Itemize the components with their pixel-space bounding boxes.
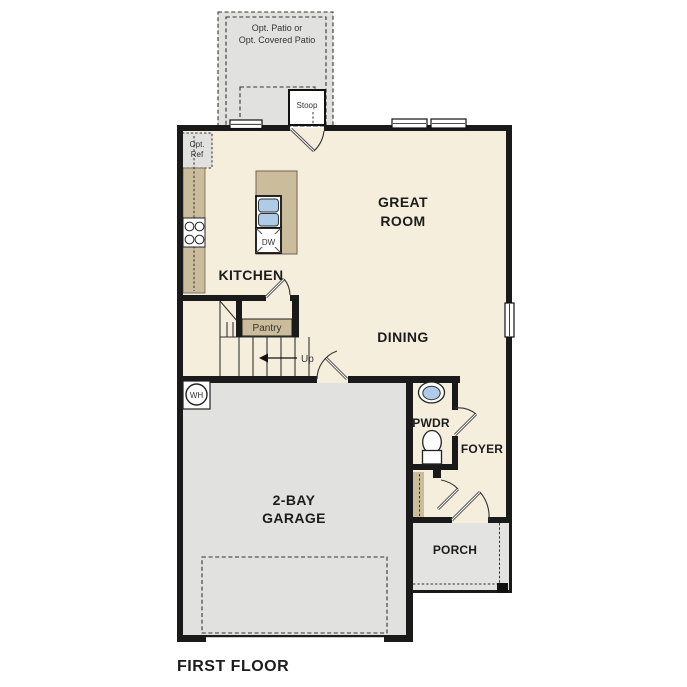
dishwasher-label: DW — [262, 238, 276, 247]
dining-label: DINING — [377, 329, 428, 345]
stoop-label: Stoop — [297, 101, 318, 110]
cooktop — [183, 218, 205, 247]
sink-bowl — [259, 214, 279, 227]
foyer-label: FOYER — [461, 442, 503, 456]
porch-label: PORCH — [433, 543, 477, 557]
burner-icon — [195, 235, 204, 244]
dishwasher: DW — [256, 228, 281, 253]
powder-room-label: PWDR — [412, 416, 450, 430]
opt-ref-label-line2: Ref — [191, 150, 204, 159]
island-sink — [256, 196, 281, 228]
water-heater: WH — [183, 381, 210, 409]
water-heater-label: WH — [190, 391, 204, 400]
pantry-label: Pantry — [253, 323, 282, 334]
sink-bowl — [259, 199, 279, 212]
wall-foyer-bottom-right — [488, 517, 512, 523]
patio-label-line1: Opt. Patio or — [252, 23, 303, 33]
burner-icon — [195, 222, 204, 231]
toilet-icon — [423, 431, 442, 465]
wall-closet-stub — [433, 470, 441, 478]
floor-plan: DW — [0, 0, 687, 687]
wall-foyer-bottom-left — [413, 517, 452, 523]
wall-pwdr-bottom — [406, 464, 458, 470]
porch-right-edge — [509, 520, 512, 593]
great-room-label-line2: ROOM — [380, 213, 425, 229]
great-room-label-line1: GREAT — [378, 194, 428, 210]
wall-kitchen-south — [177, 295, 266, 301]
floor-plan-svg: DW — [0, 0, 687, 687]
wall-left — [177, 125, 183, 642]
wall-garage-top-east — [348, 376, 460, 383]
wall-garage-bottom-left — [177, 635, 206, 642]
porch-column — [497, 583, 508, 593]
patio-label-line2: Opt. Covered Patio — [239, 35, 316, 45]
garage-door-line — [206, 635, 384, 637]
wall-pwdr-right-top — [452, 383, 458, 410]
opt-ref-label-line1: Opt. — [189, 140, 204, 149]
up-label: Up — [301, 354, 314, 365]
toilet-tank — [423, 451, 442, 465]
garage-label-line1: 2-BAY — [273, 492, 316, 508]
kitchen-label: KITCHEN — [218, 267, 283, 283]
wall-pantry-left — [236, 295, 242, 337]
wall-pantry-right — [292, 295, 299, 337]
garage-label-line2: GARAGE — [262, 510, 326, 526]
coat-closet — [413, 472, 424, 518]
closet-shelf — [413, 472, 424, 518]
burner-icon — [185, 222, 194, 231]
burner-icon — [185, 235, 194, 244]
garage-floor — [183, 383, 406, 635]
sink-bowl-icon — [423, 386, 440, 399]
front-door-threshold — [452, 517, 488, 523]
plan-title: FIRST FLOOR — [177, 658, 289, 675]
wall-pwdr-right-bottom — [452, 436, 458, 464]
